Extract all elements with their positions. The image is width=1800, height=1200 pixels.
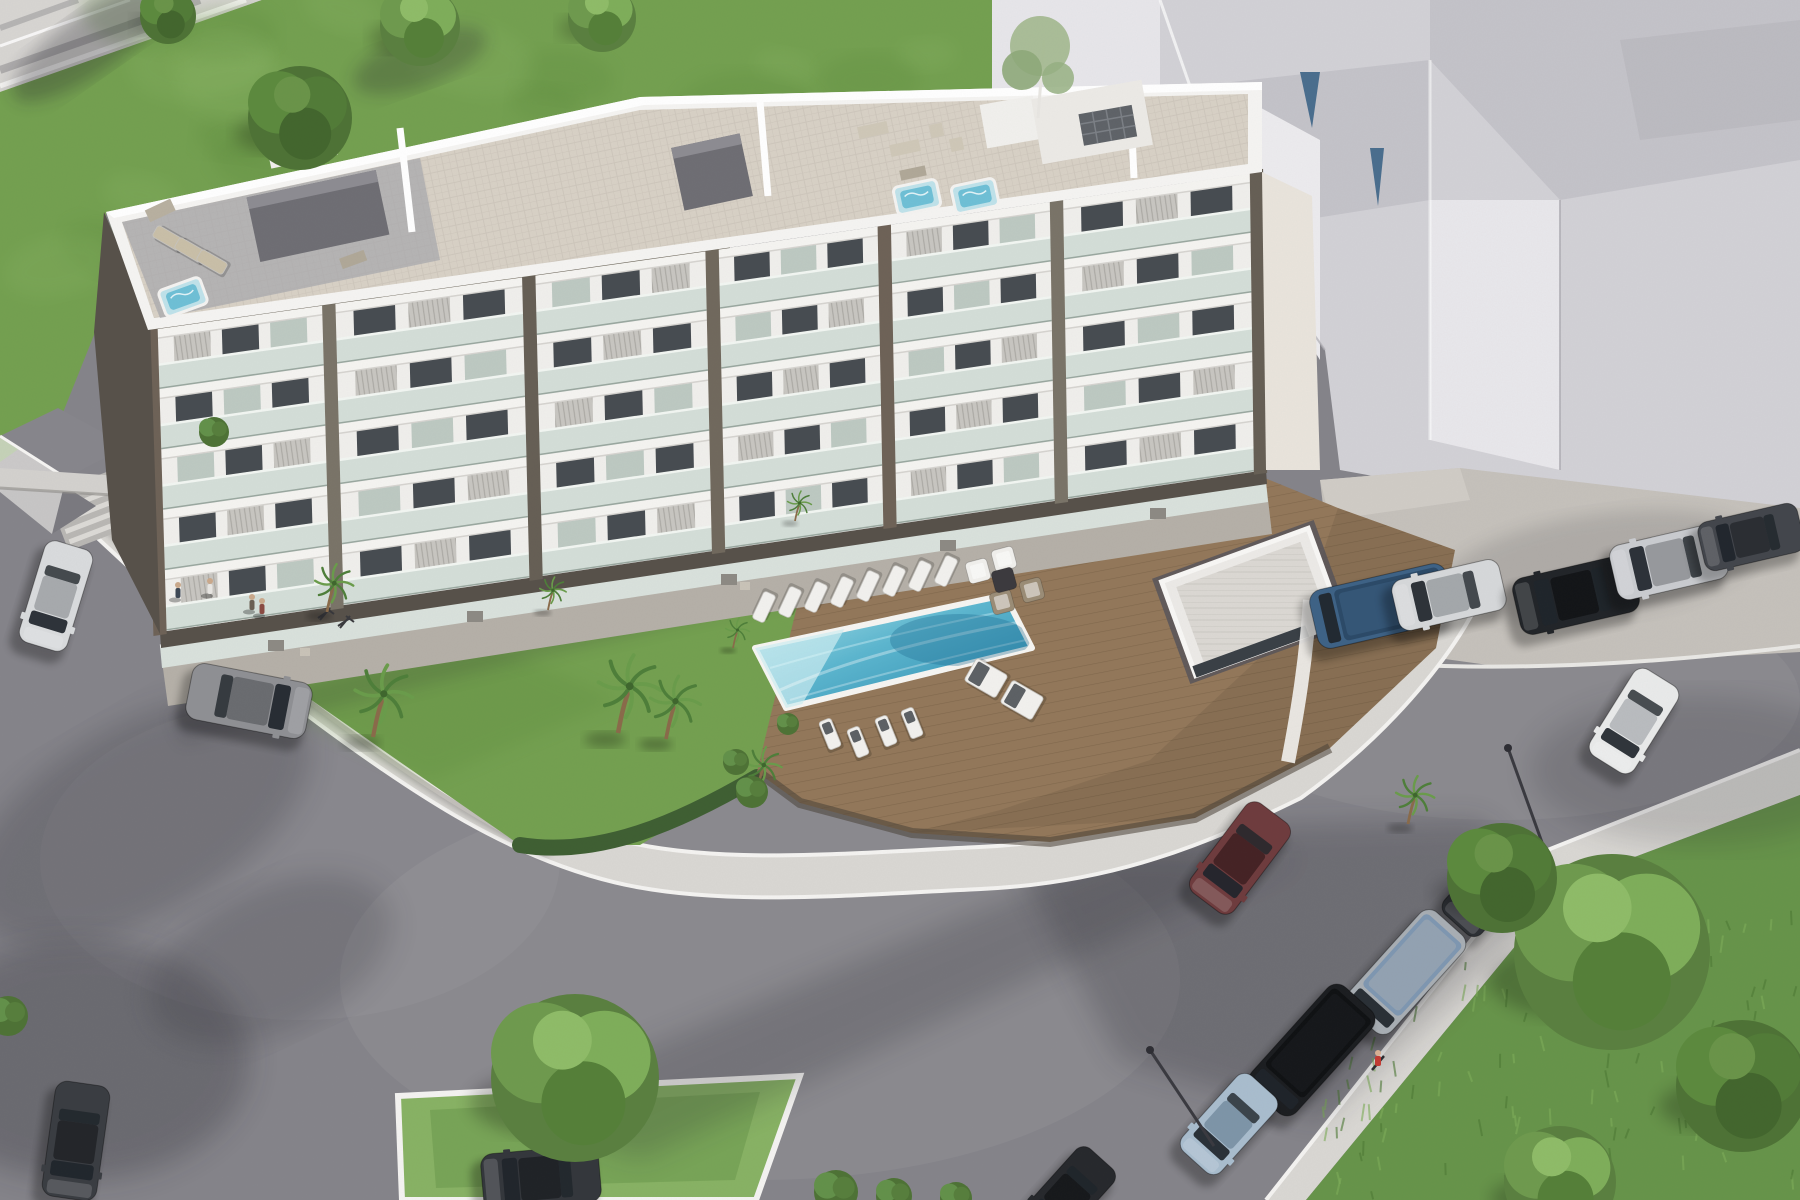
render-canvas (0, 0, 1800, 1200)
aerial-architectural-render (0, 0, 1800, 1200)
grain-overlay (0, 0, 1800, 1200)
